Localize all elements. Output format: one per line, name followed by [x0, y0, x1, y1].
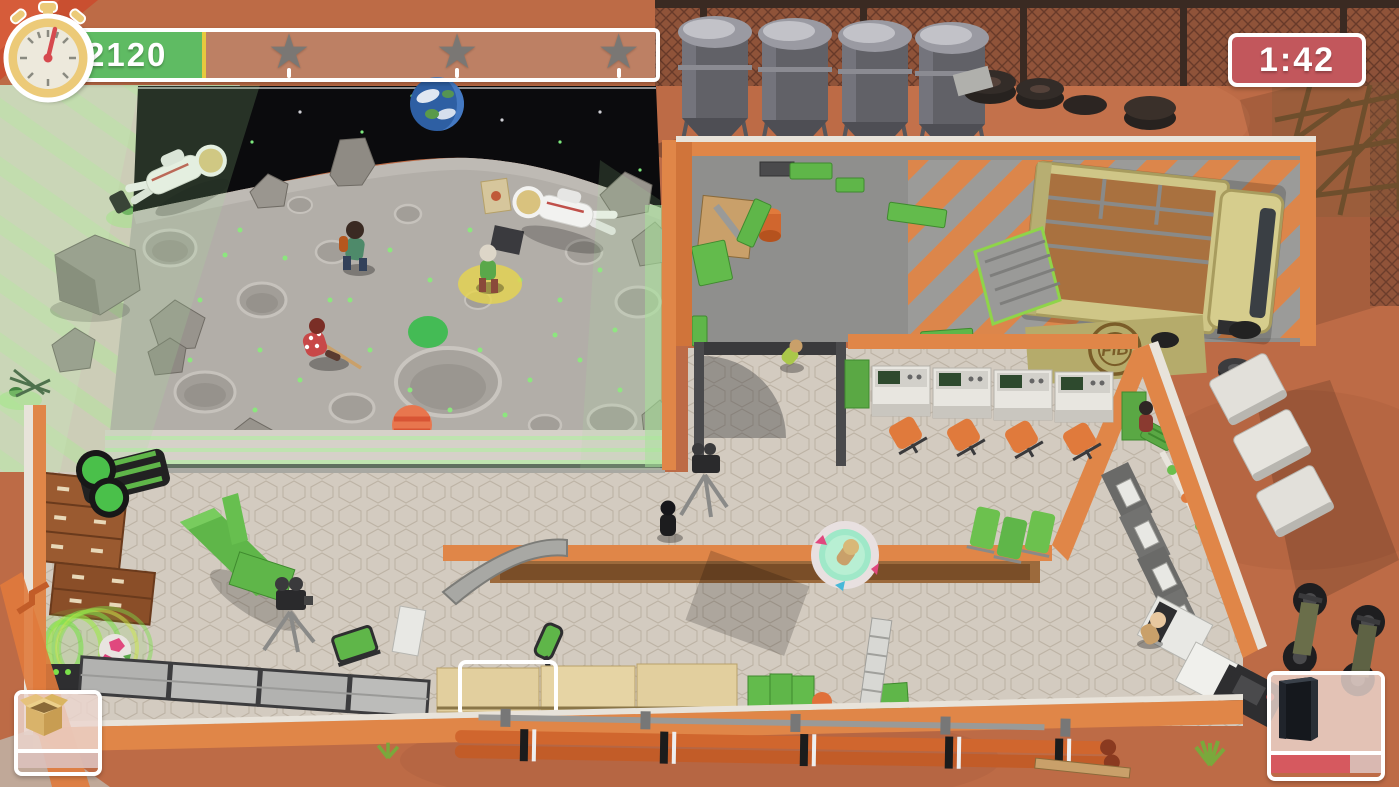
- earth-prop: [410, 77, 464, 131]
- actor-desk[interactable]: [1139, 401, 1153, 432]
- moon-film-set: [0, 77, 671, 473]
- game-scene[interactable]: FIB: [0, 0, 1399, 787]
- game-screen: FIB: [0, 0, 1399, 787]
